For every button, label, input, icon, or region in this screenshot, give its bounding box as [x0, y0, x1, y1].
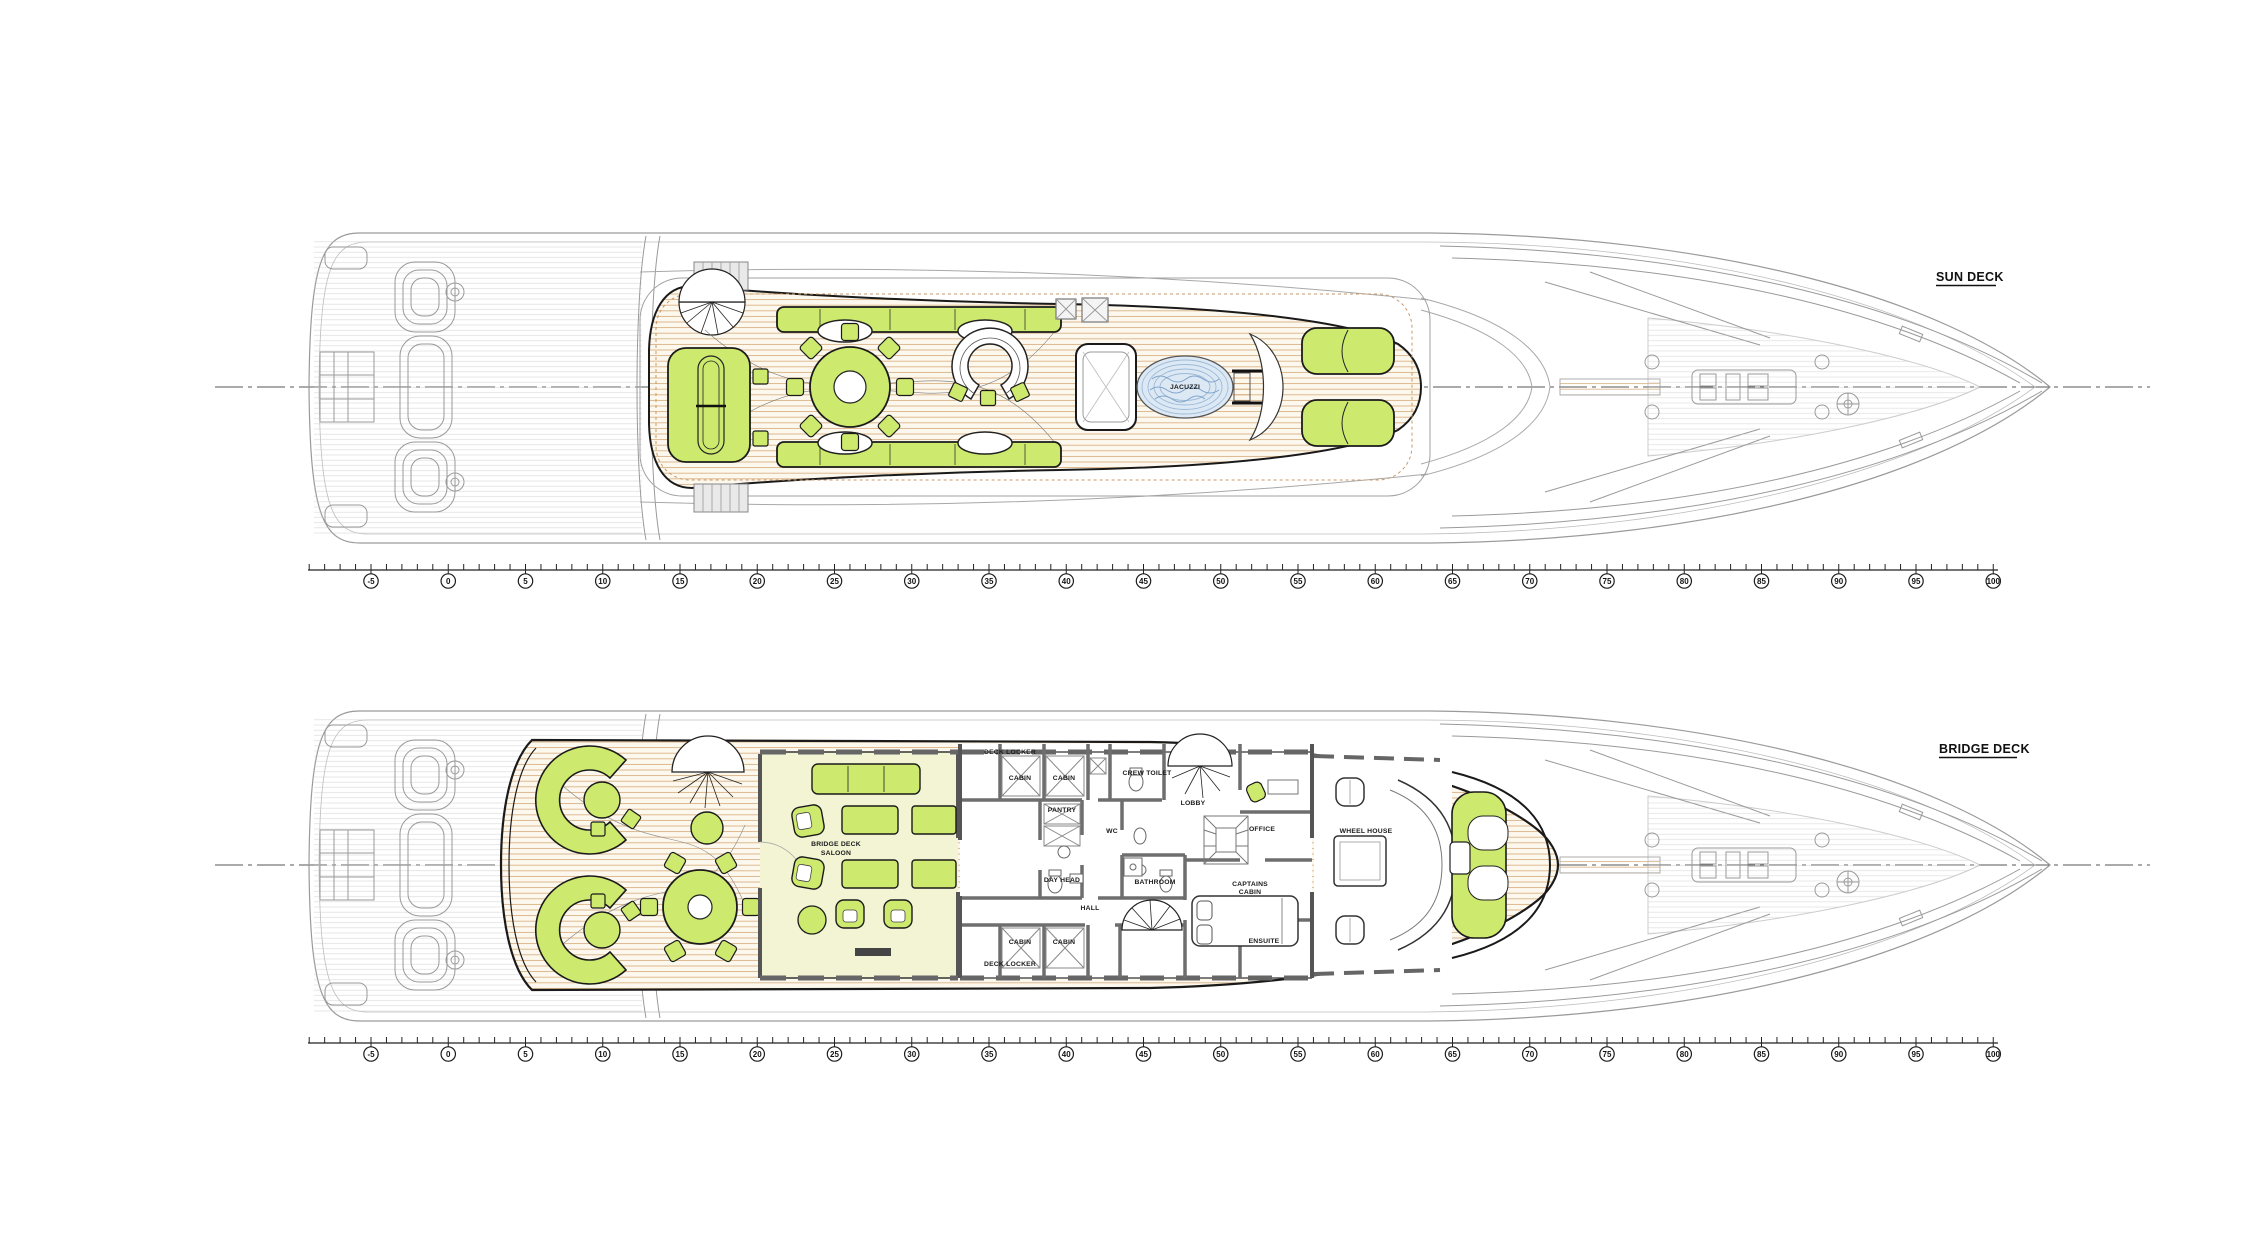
frame-number: 55	[1294, 1050, 1303, 1059]
ga-plan-drawing: JACUZZI SUN DECK	[0, 0, 2259, 1236]
room-label: CREW TOILET	[1123, 770, 1173, 777]
frame-number: 75	[1603, 577, 1612, 586]
room-label: CABIN	[1239, 889, 1262, 896]
frame-number: 5	[523, 1050, 528, 1059]
frame-number: 95	[1912, 1050, 1921, 1059]
room-label: JACUZZI	[1170, 384, 1200, 391]
frame-number: 0	[446, 1050, 451, 1059]
room-label: PANTRY	[1048, 807, 1077, 814]
room-label: WC	[1106, 828, 1118, 835]
sun-deck-spiral-stair	[679, 269, 745, 335]
frame-ruler-sun-deck: -505101520253035404550556065707580859095…	[308, 564, 2000, 588]
ga-plan-sheet: JACUZZI SUN DECK	[0, 0, 2259, 1236]
frame-number: 65	[1448, 1050, 1457, 1059]
frame-number: 30	[907, 577, 916, 586]
frame-number: 5	[523, 577, 528, 586]
room-label: CABIN	[1009, 939, 1032, 946]
room-label: CABIN	[1053, 939, 1076, 946]
frame-number: 40	[1062, 577, 1071, 586]
frame-number: 50	[1216, 577, 1225, 586]
frame-ruler-bridge-deck: -505101520253035404550556065707580859095…	[308, 1037, 2000, 1061]
bridge-deck-plan: DECK LOCKERCABINCABINCREW TOILETLOBBYPAN…	[215, 711, 2150, 1021]
frame-number: 45	[1139, 577, 1148, 586]
frame-number: 20	[753, 1050, 762, 1059]
bridge-deck-saloon	[760, 752, 958, 978]
deck-title-sun: SUN DECK	[1936, 270, 2004, 284]
room-label: HALL	[1081, 905, 1100, 912]
saloon-tv-cabinet	[855, 948, 891, 956]
frame-number: 35	[985, 1050, 994, 1059]
frame-number: 90	[1834, 577, 1843, 586]
frame-number: 55	[1294, 577, 1303, 586]
frame-number: 40	[1062, 1050, 1071, 1059]
room-label: LOBBY	[1181, 800, 1206, 807]
frame-number: 100	[1987, 1050, 2001, 1059]
frame-number: 70	[1525, 577, 1534, 586]
room-label: CABIN	[1009, 775, 1032, 782]
room-label: CABIN	[1053, 775, 1076, 782]
room-label: SALOON	[821, 850, 851, 857]
room-label: OFFICE	[1249, 826, 1275, 833]
frame-number: 80	[1680, 577, 1689, 586]
frame-number: 65	[1448, 577, 1457, 586]
frame-number: 95	[1912, 577, 1921, 586]
sun-deck-plan: JACUZZI SUN DECK	[215, 233, 2150, 543]
frame-number: -5	[367, 577, 375, 586]
frame-number: 15	[676, 1050, 685, 1059]
frame-number: 25	[830, 577, 839, 586]
deck-title-bridge: BRIDGE DECK	[1939, 742, 2030, 756]
frame-number: 15	[676, 577, 685, 586]
frame-number: 50	[1216, 1050, 1225, 1059]
sun-deck-room-labels: JACUZZI	[1170, 384, 1200, 391]
frame-number: 10	[598, 577, 607, 586]
room-label: BATHROOM	[1134, 879, 1175, 886]
frame-number: 10	[598, 1050, 607, 1059]
room-label: WHEEL HOUSE	[1340, 828, 1393, 835]
frame-number: -5	[367, 1050, 375, 1059]
frame-number: 80	[1680, 1050, 1689, 1059]
frame-number: 70	[1525, 1050, 1534, 1059]
frame-number: 0	[446, 577, 451, 586]
frame-number: 75	[1603, 1050, 1612, 1059]
frame-number: 85	[1757, 577, 1766, 586]
room-label: DAY HEAD	[1044, 877, 1080, 884]
frame-number: 25	[830, 1050, 839, 1059]
room-label: BRIDGE DECK	[811, 841, 861, 848]
frame-number: 100	[1987, 577, 2001, 586]
frame-number: 90	[1834, 1050, 1843, 1059]
frame-number: 35	[985, 577, 994, 586]
frame-number: 60	[1371, 1050, 1380, 1059]
room-label: CAPTAINS	[1232, 881, 1268, 888]
room-label: DECK LOCKER	[984, 749, 1036, 756]
frame-number: 30	[907, 1050, 916, 1059]
frame-number: 85	[1757, 1050, 1766, 1059]
frame-number: 60	[1371, 577, 1380, 586]
room-label: DECK LOCKER	[984, 961, 1036, 968]
frame-number: 20	[753, 577, 762, 586]
room-label: ENSUITE	[1249, 938, 1280, 945]
sun-deck-platform	[640, 262, 1430, 512]
frame-number: 45	[1139, 1050, 1148, 1059]
